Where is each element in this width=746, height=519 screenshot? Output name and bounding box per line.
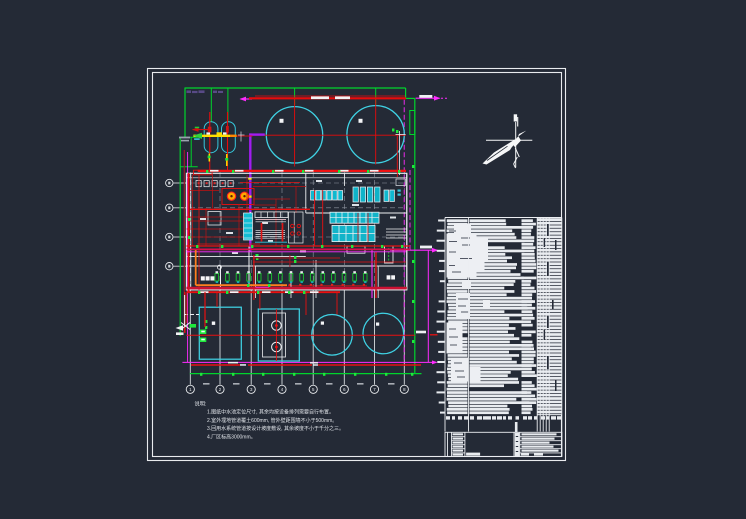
svg-text:1.图纸中水池定位尺寸, 其余均按设备排列需要自行布置。: 1.图纸中水池定位尺寸, 其余均按设备排列需要自行布置。 [207,408,334,415]
svg-text:3.回用水系统管道按设计坡度敷设, 其余坡度不小于千分之三。: 3.回用水系统管道按设计坡度敷设, 其余坡度不小于千分之三。 [207,425,344,432]
svg-text:2.室外埋地管道覆土600mm, 管外壁距围墙不小于500m: 2.室外埋地管道覆土600mm, 管外壁距围墙不小于500mm。 [207,417,337,424]
svg-text:说明:: 说明: [195,400,207,408]
svg-text:4.厂区标高3000mm。: 4.厂区标高3000mm。 [207,434,256,441]
